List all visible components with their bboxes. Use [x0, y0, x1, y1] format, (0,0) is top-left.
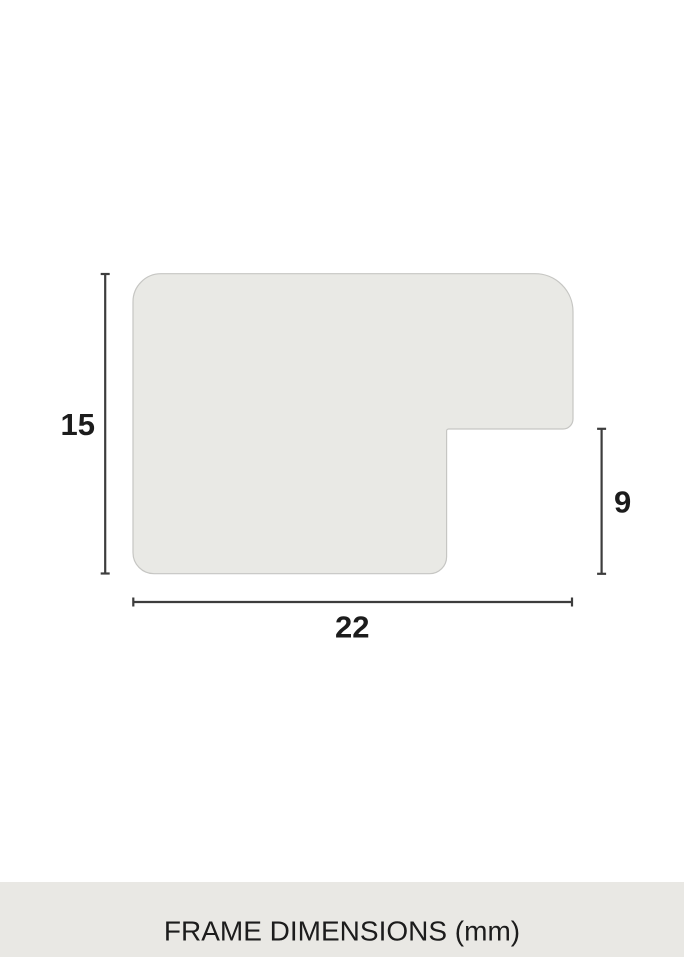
svg-text:22: 22	[335, 609, 369, 644]
svg-text:FRAME DIMENSIONS (mm): FRAME DIMENSIONS (mm)	[164, 915, 520, 946]
svg-text:15: 15	[60, 407, 94, 442]
svg-text:9: 9	[614, 485, 631, 520]
